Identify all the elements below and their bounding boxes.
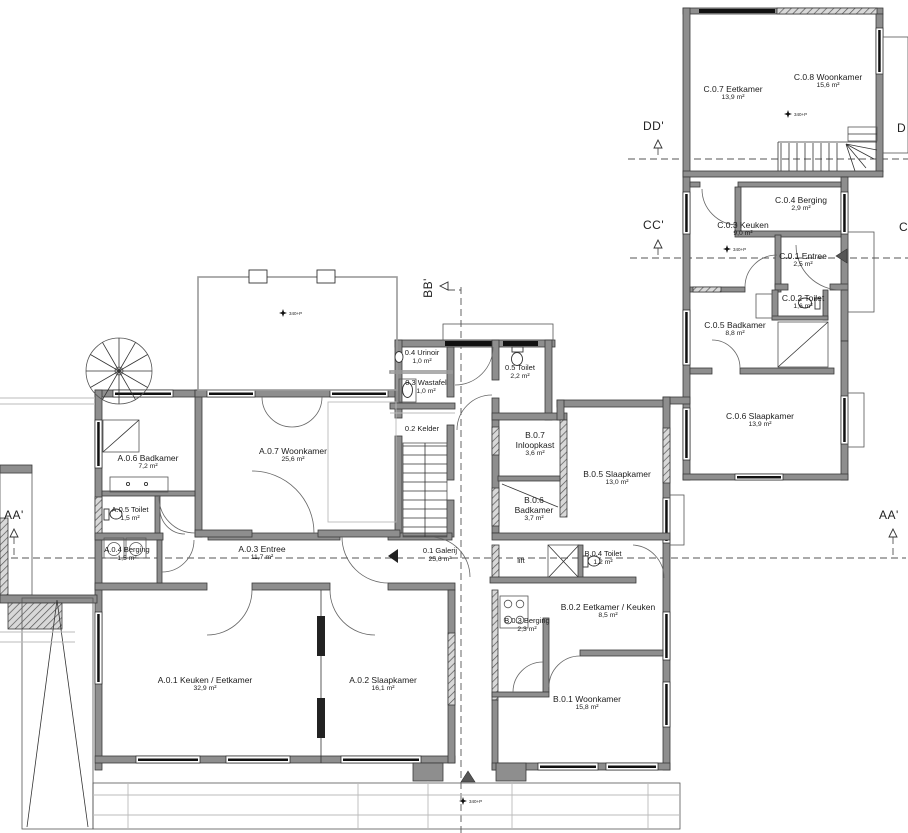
room-label-c05: C.0.5 Badkamer8,8 m² [704,320,765,338]
left-annex [0,398,97,829]
room-label-b01: B.0.1 Woonkamer15,8 m² [553,694,621,712]
floor-plan: 340+P 340+P 340+P 340+P D C C.0.7 Eetkam… [0,0,908,833]
room-label-c03: C.0.3 Keuken9,0 m² [717,220,769,238]
basement-stairs [403,443,447,537]
room-label-a05: A.0.5 Toilet1,5 m² [112,505,149,523]
room-label-b02: B.0.2 Eetkamer / Keuken8,5 m² [561,602,656,620]
room-label-t05: 0.5 Toilet2,2 m² [505,363,535,381]
room-label-u04: 0.4 Urinoir1,0 m² [405,348,440,366]
section-label-cc: CC' [643,218,664,232]
room-label-w03: 0.3 Wastafel1,0 m² [405,378,446,396]
section-arrow-dd [654,140,662,148]
section-arrow-aa-right [889,529,897,537]
room-label-b07: B.0.7Inloopkast3,6 m² [516,430,555,458]
section-label-aa-right: AA' [879,508,899,522]
section-label-bb: BB' [421,278,435,298]
room-label-c08: C.0.8 Woonkamer15,6 m² [794,72,862,90]
room-label-a02: A.0.2 Slaapkamer16,1 m² [349,675,417,693]
room-label-g01: 0.1 Galerij25,6 m² [423,546,457,564]
room-label-a01: A.0.1 Keuken / Eetkamer32,9 m² [158,675,253,693]
room-label-a04: A.0.4 Berging1,5 m² [104,545,149,563]
section-label-dd: DD' [643,119,664,133]
room-label-a06: A.0.6 Badkamer7,2 m² [118,453,179,471]
urinal-icon [395,352,403,363]
unit-c-fixtures [702,189,841,368]
room-label-b05: B.0.5 Slaapkamer13,0 m² [583,469,651,487]
unit-c-walls [663,8,908,480]
spiral-staircase [86,338,152,404]
room-label-c01: C.0.1 Entree2,5 m² [779,251,827,269]
room-label-k02: 0.2 Kelder [405,424,439,434]
section-label-aa-left: AA' [4,508,24,522]
room-label-a07: A.0.7 Woonkamer25,6 m² [259,446,327,464]
section-arrow-bb [440,282,448,290]
unit-c-stairs [778,127,877,171]
room-label-b04: B.0.4 Toilet1,2 m² [585,549,622,567]
svg-text:340+P: 340+P [289,311,302,316]
svg-text:340+P: 340+P [794,112,807,117]
section-letter-c: C [899,220,908,234]
room-label-c06: C.0.6 Slaapkamer13,9 m² [726,411,794,429]
section-arrow-cc [654,240,662,248]
door-swings [159,347,664,692]
room-label-c07: C.0.7 Eetkamer13,9 m² [703,84,762,102]
entrance-arrow-main [461,771,475,782]
room-label-a03: A.0.3 Entree11,7 m² [238,544,285,562]
room-label-c04: C.0.4 Berging2,9 m² [775,195,827,213]
section-arrow-aa-left [10,529,18,537]
svg-text:340+P: 340+P [733,247,746,252]
section-letter-d: D [897,121,906,135]
terrace [93,763,680,829]
room-label-c02: C.0.2 Toilet1,6 m² [782,293,824,311]
galerij-arrow [388,549,398,563]
room-label-b03: B.0.3 Berging2,3 m² [504,616,549,634]
room-label-lift: lift [517,556,525,566]
svg-text:340+P: 340+P [469,799,482,804]
room-label-b06: B.0.6Badkamer3,7 m² [515,495,554,523]
